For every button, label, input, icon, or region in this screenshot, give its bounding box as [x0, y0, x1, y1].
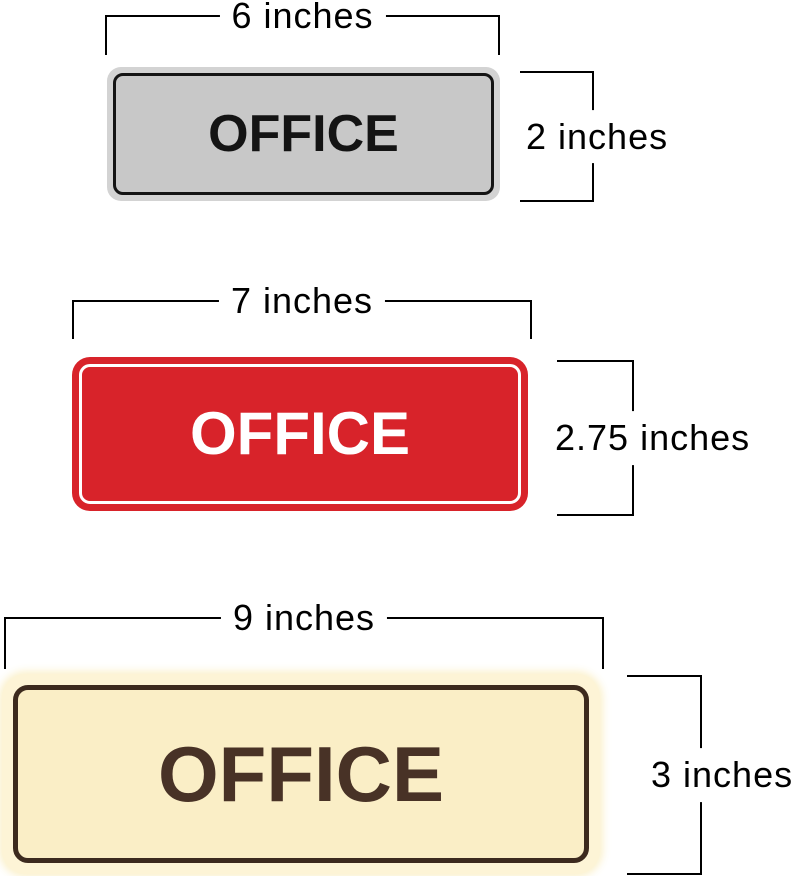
height-dimension-label: 2.75 inches [551, 411, 754, 465]
width-dimension-label: 9 inches [221, 599, 387, 637]
height-dimension-bracket-2-75in: 2.75 inches [557, 360, 634, 516]
office-sign-gray: OFFICE [107, 67, 500, 201]
width-dimension-label: 7 inches [219, 282, 385, 320]
office-sign-red: OFFICE [72, 357, 528, 511]
height-dimension-label: 3 inches [647, 748, 795, 802]
width-dimension-bracket-9in: 9 inches [4, 617, 604, 669]
height-dimension-label: 2 inches [522, 110, 672, 164]
width-dimension-bracket-6in: 6 inches [105, 15, 500, 55]
height-dimension-bracket-3in: 3 inches [627, 675, 702, 875]
office-sign-cream-face: OFFICE [13, 685, 589, 863]
office-signs-dimension-diagram: 6 inches OFFICE 2 inches 7 inches OFFICE… [0, 0, 795, 876]
sign-text: OFFICE [190, 404, 410, 464]
height-dimension-bracket-2in: 2 inches [520, 71, 594, 202]
office-sign-cream: OFFICE [2, 674, 600, 874]
sign-text: OFFICE [158, 735, 444, 813]
office-sign-red-face: OFFICE [79, 364, 521, 504]
width-dimension-label: 6 inches [219, 0, 385, 35]
sign-text: OFFICE [208, 108, 399, 160]
office-sign-gray-face: OFFICE [113, 73, 494, 195]
width-dimension-bracket-7in: 7 inches [72, 300, 532, 339]
